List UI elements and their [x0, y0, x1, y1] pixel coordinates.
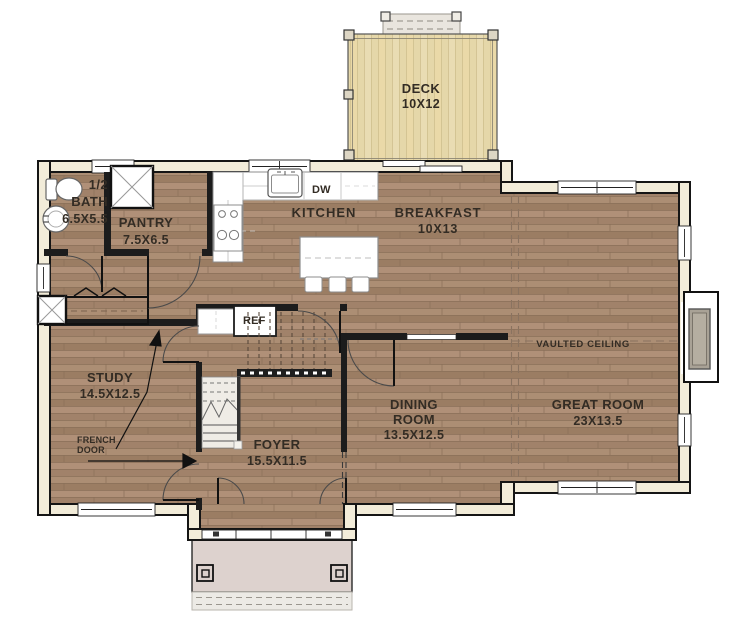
half-bath-label: 1/2BATH6.5X5.5	[50, 176, 108, 228]
kitchen-island	[300, 237, 378, 292]
porch-post	[197, 565, 213, 581]
porch-steps	[192, 592, 352, 610]
porch-post	[331, 565, 347, 581]
fireplace	[681, 292, 718, 382]
kitchen-sink	[268, 169, 302, 197]
cased-opening-breakfast-dining	[407, 335, 456, 340]
kitchen-label: KITCHEN	[292, 205, 357, 220]
dining-window	[393, 503, 456, 516]
study-window	[78, 503, 155, 516]
front-porch	[192, 539, 352, 610]
great-room-window-right-lower	[678, 414, 691, 446]
floor-plan: DECK10X12 1/2BATH6.5X5.5 PANTRY7.5X6.5 K…	[0, 0, 743, 630]
study-chase	[38, 296, 66, 324]
stool	[329, 277, 346, 292]
linen-chase	[111, 166, 153, 208]
stool	[305, 277, 322, 292]
great-room-label: GREAT ROOM23X13.5	[552, 397, 645, 429]
foyer-label: FOYER15.5X11.5	[247, 437, 307, 469]
porch-slab	[192, 539, 352, 592]
floor-plan-drawing	[0, 0, 743, 630]
pantry-label: PANTRY7.5X6.5	[119, 214, 173, 249]
front-door	[202, 530, 342, 539]
study-window-left	[37, 264, 50, 292]
upper-stairs	[202, 377, 242, 449]
stove	[214, 205, 242, 251]
breakfast-window	[558, 181, 636, 194]
great-room-window-right-upper	[678, 226, 691, 260]
french-door-label: FRENCHDOOR	[77, 435, 116, 455]
stool	[352, 277, 369, 292]
vaulted-ceiling-label: VAULTED CEILING	[536, 340, 630, 350]
ref-label: REF	[243, 314, 266, 329]
great-room-window-bottom	[558, 481, 636, 494]
study-label: STUDY14.5X12.5	[80, 370, 141, 402]
dw-label: DW	[312, 183, 331, 198]
dining-room-label: DININGROOM13.5X12.5	[384, 397, 445, 443]
deck-label: DECK10X12	[402, 81, 440, 112]
breakfast-label: BREAKFAST10X13	[395, 205, 482, 237]
